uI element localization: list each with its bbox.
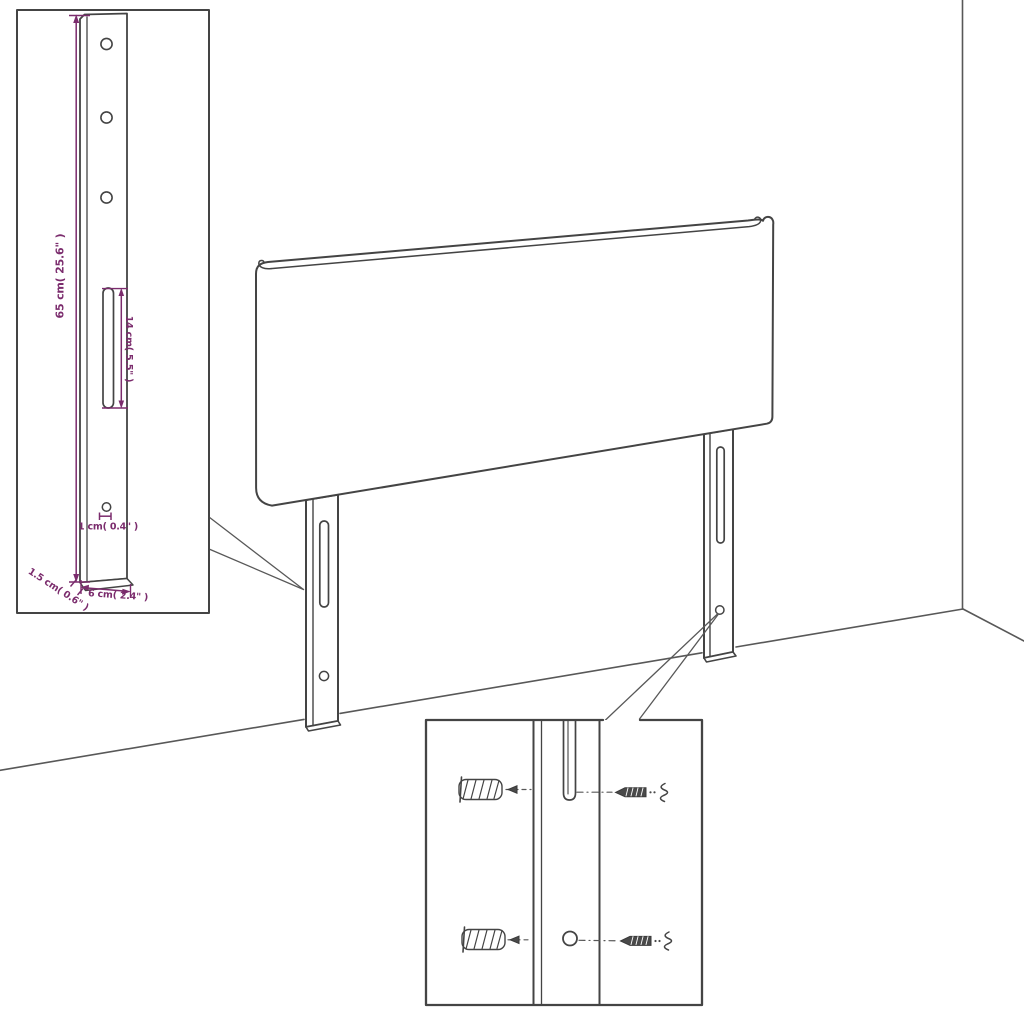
- dim-label-height: 65 cm( 25.6" ): [55, 234, 66, 319]
- left-detail-callout-lines: [209, 517, 304, 590]
- floor-line-right: [963, 609, 1024, 641]
- panel-outline: [256, 217, 773, 506]
- right-detail-callout-lines: [606, 614, 719, 720]
- headboard-left-leg: [306, 495, 341, 731]
- floor-line-left-1: [736, 609, 963, 647]
- headboard-panel: [256, 217, 773, 506]
- dim-label-slot: 14 cm( 5.5" ): [123, 316, 133, 383]
- floor-line-left-3: [0, 719, 304, 770]
- diagram-canvas: [0, 0, 1024, 1024]
- floor-line-left-2: [340, 653, 702, 714]
- headboard-assembly-diagram: 65 cm( 25.6" ) 14 cm( 5.5" ) 1 cm( 0.4" …: [0, 0, 1024, 1024]
- dim-label-hole: 1 cm( 0.4" ): [78, 522, 138, 532]
